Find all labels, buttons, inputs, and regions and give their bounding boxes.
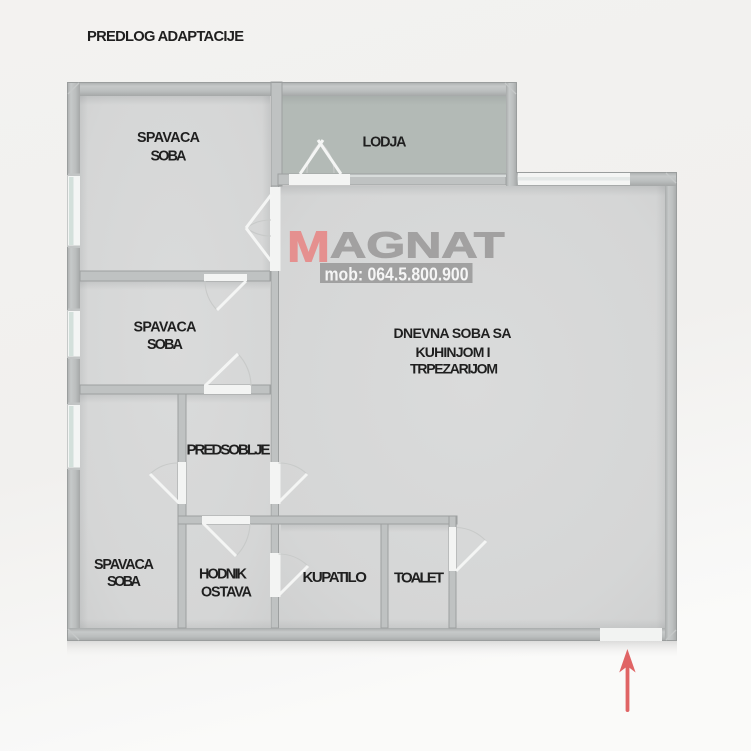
svg-text:PREDLOG ADAPTACIJE: PREDLOG ADAPTACIJE bbox=[87, 29, 244, 45]
svg-text:SOBA: SOBA bbox=[151, 149, 187, 165]
svg-text:KUHINJOM I: KUHINJOM I bbox=[416, 344, 491, 360]
svg-text:mob: 064.5.800.900: mob: 064.5.800.900 bbox=[325, 264, 469, 285]
svg-text:AGNAT: AGNAT bbox=[330, 225, 505, 266]
svg-text:OSTAVA: OSTAVA bbox=[201, 585, 252, 601]
svg-text:SPAVACA: SPAVACA bbox=[134, 320, 197, 336]
svg-text:TOALET: TOALET bbox=[394, 570, 444, 587]
svg-text:TRPEZARIJOM: TRPEZARIJOM bbox=[410, 361, 498, 377]
svg-text:HODNIK: HODNIK bbox=[199, 567, 248, 583]
svg-text:SOBA: SOBA bbox=[147, 337, 183, 353]
svg-text:PREDSOBLJE: PREDSOBLJE bbox=[187, 442, 271, 459]
svg-text:LODJA: LODJA bbox=[363, 135, 407, 151]
svg-text:SPAVACA: SPAVACA bbox=[137, 130, 200, 146]
svg-text:DNEVNA SOBA SA: DNEVNA SOBA SA bbox=[394, 325, 512, 341]
svg-text:KUPATILO: KUPATILO bbox=[302, 569, 367, 586]
svg-text:SOBA: SOBA bbox=[107, 574, 141, 590]
svg-text:SPAVACA: SPAVACA bbox=[94, 557, 154, 573]
